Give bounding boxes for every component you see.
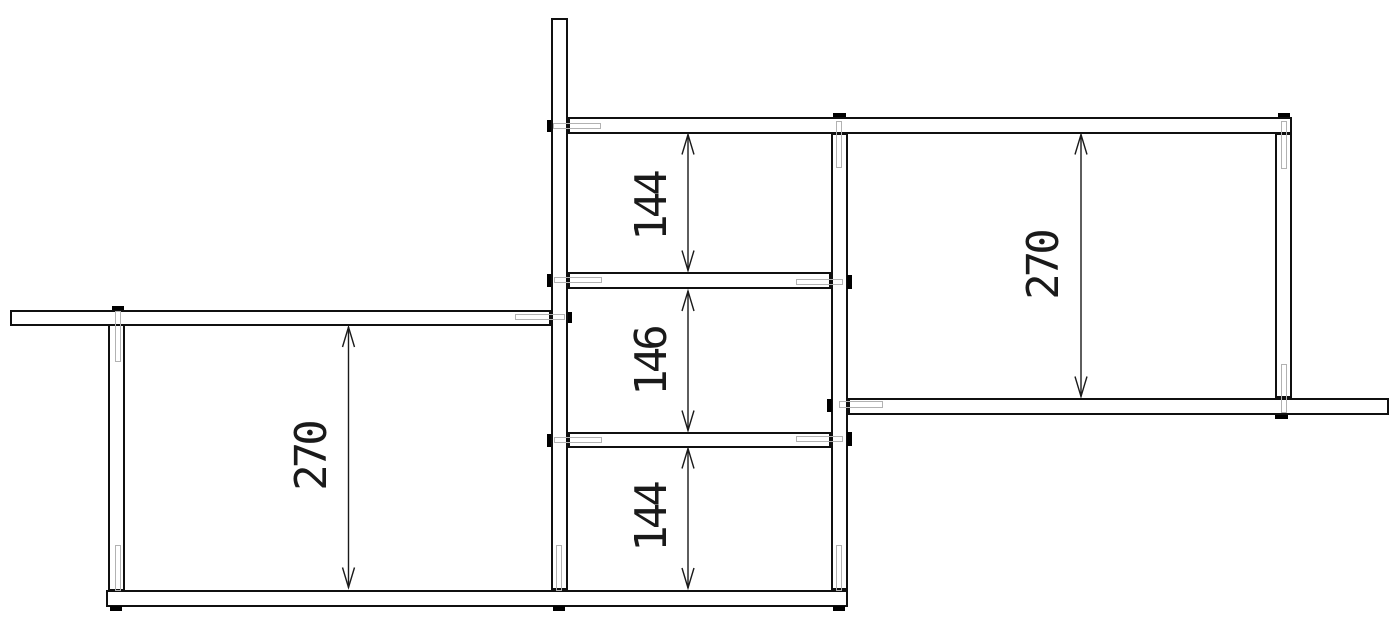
plug-center-post-shelf-lower-mid	[547, 434, 552, 447]
plug-left-post-top	[112, 306, 125, 311]
plug-center-post-shelf-top	[547, 120, 552, 132]
dim-left-270	[343, 327, 355, 588]
part-post-mid-right	[831, 133, 848, 590]
dim-mid-bottom-144	[682, 449, 694, 589]
plug-left-post-foot	[110, 606, 123, 611]
plug-midright-post-shelf-lower-mid	[847, 432, 852, 446]
plug-midright-post-foot	[833, 606, 846, 611]
dowel-midright-post-bottom	[836, 545, 842, 591]
plug-right-post-top	[1278, 113, 1291, 118]
dim-mid-146	[682, 291, 694, 431]
dowel-right-post-bottom	[1281, 364, 1287, 413]
part-shelf-upper-mid	[568, 272, 831, 289]
dowel-midright-post-shelf-top	[836, 121, 842, 168]
plug-center-post-shelf-upper-mid	[547, 274, 552, 287]
plug-center-post-foot	[553, 606, 566, 611]
part-post-center	[551, 18, 568, 591]
dowel-left-post-top	[115, 311, 121, 362]
dowel-midright-post-shelf-lower-mid	[796, 436, 843, 442]
dimension-label-dim-mid-146: 146	[630, 328, 674, 395]
part-shelf-right	[848, 398, 1390, 415]
dimension-label-dim-right-270: 270	[1022, 232, 1066, 299]
technical-drawing-canvas: 270144146144270	[0, 0, 1400, 639]
part-shelf-top	[568, 117, 1292, 134]
part-post-right	[1275, 133, 1293, 398]
dim-right-270	[1075, 135, 1087, 397]
plug-center-post-shelf-left	[568, 312, 573, 324]
plug-midright-post-top	[833, 113, 846, 118]
dowel-left-post-bottom	[115, 545, 121, 591]
dimension-label-dim-left-270: 270	[290, 423, 334, 490]
plug-right-post-under-shelf	[1275, 415, 1288, 420]
dowel-center-post-shelf-lower-mid	[554, 437, 602, 443]
dowel-center-post-bottom	[556, 545, 562, 591]
dowel-midright-post-shelf-right	[839, 401, 883, 408]
dim-mid-top-144	[682, 135, 694, 271]
part-shelf-bottom	[106, 590, 848, 607]
part-shelf-left	[10, 310, 551, 327]
part-shelf-lower-mid	[568, 432, 831, 449]
dowel-center-post-shelf-upper-mid	[554, 277, 602, 283]
dowel-center-post-shelf-left	[515, 314, 565, 320]
dowel-center-post-shelf-top	[553, 123, 601, 129]
dimension-label-dim-mid-top-144: 144	[630, 173, 674, 240]
plug-midright-post-shelf-upper-mid	[847, 275, 852, 289]
dowel-right-post-top	[1281, 121, 1287, 169]
dimension-label-dim-mid-bottom-144: 144	[630, 484, 674, 551]
dowel-midright-post-shelf-upper-mid	[796, 279, 843, 285]
plug-midright-post-shelf-right	[827, 399, 832, 413]
